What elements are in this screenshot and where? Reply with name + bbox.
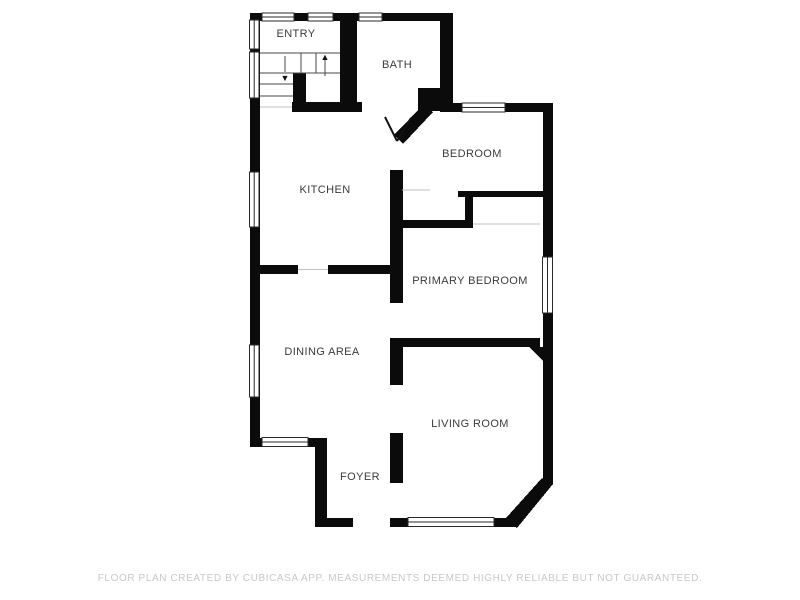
wall-kitchen-bottom-left [250, 265, 298, 274]
door-leaf-bath [385, 117, 397, 141]
interior-walls [250, 13, 543, 483]
room-label-primary-bedroom: PRIMARY BEDROOM [412, 275, 528, 287]
wall-stairs-block [293, 73, 306, 112]
room-label-dining-area: DINING AREA [284, 346, 360, 358]
room-label-kitchen: KITCHEN [299, 184, 350, 196]
room-label-bath: BATH [382, 59, 412, 71]
disclaimer-text: FLOOR PLAN CREATED BY CUBICASA APP. MEAS… [98, 573, 703, 584]
window-symbol [462, 103, 505, 112]
wall-hall-mid [390, 338, 403, 385]
window-symbol [250, 20, 260, 49]
window-symbol [250, 345, 260, 397]
wall-closet-side [465, 196, 473, 222]
room-label-living-room: LIVING ROOM [431, 418, 509, 430]
wall-living-corner-chamfer [529, 347, 543, 361]
floor-plan-page: ▲ ▼ ENTRY BATH BEDROOM KITCHEN PRIMARY B… [0, 0, 800, 600]
window-symbol [262, 438, 308, 447]
room-label-entry: ENTRY [276, 28, 315, 40]
window-symbol [250, 172, 260, 227]
window-symbol [308, 13, 333, 21]
floor-plan-drawing: ▲ ▼ ENTRY BATH BEDROOM KITCHEN PRIMARY B… [0, 0, 800, 600]
room-label-foyer: FOYER [340, 471, 380, 483]
wall-entry-bath-divider [340, 13, 357, 108]
stairs-up-arrow-icon: ▲ [321, 52, 330, 62]
room-label-bedroom: BEDROOM [442, 148, 502, 160]
window-symbol [359, 13, 382, 21]
wall-foyer-right [390, 433, 403, 483]
window-symbol [262, 13, 294, 21]
window-symbol [250, 52, 260, 98]
window-symbol [408, 518, 494, 527]
wall-primary-living-divider [403, 338, 540, 347]
wall-bedroom-bottom [393, 220, 473, 228]
wall-foyer-left [315, 447, 327, 527]
stairs-down-arrow-icon: ▼ [281, 73, 290, 83]
window-symbol [543, 257, 553, 313]
wall-kitchen-bottom-right [328, 265, 403, 274]
wall-hall-upper [390, 170, 403, 303]
